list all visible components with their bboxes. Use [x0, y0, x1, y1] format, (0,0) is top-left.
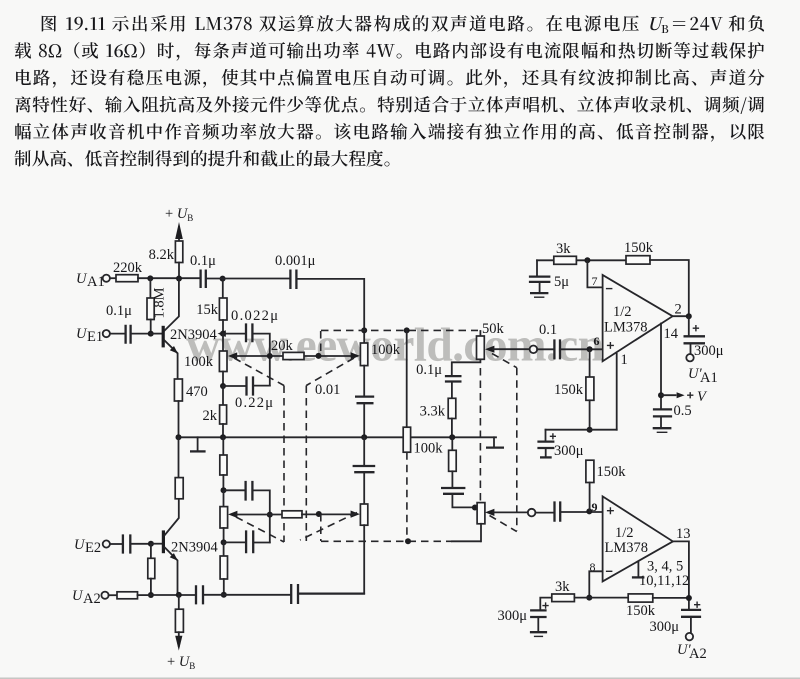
svg-text:1/2: 1/2: [613, 304, 632, 320]
svg-text:E2: E2: [85, 540, 101, 556]
svg-text:50k: 50k: [482, 321, 505, 337]
svg-text:LM378: LM378: [604, 320, 648, 336]
svg-text:2: 2: [675, 302, 682, 318]
svg-text:300μ: 300μ: [694, 343, 724, 359]
svg-text:470: 470: [186, 384, 208, 400]
svg-text:A2: A2: [689, 646, 707, 662]
svg-text:150k: 150k: [626, 603, 656, 619]
svg-text:6: 6: [594, 334, 600, 348]
svg-text:LM378: LM378: [605, 540, 649, 556]
svg-text:0.022μ: 0.022μ: [231, 308, 278, 324]
svg-text:14: 14: [664, 326, 679, 342]
svg-text:20k: 20k: [271, 338, 294, 354]
svg-text:9: 9: [592, 500, 598, 514]
svg-text:A1: A1: [87, 274, 105, 290]
svg-text:3k: 3k: [555, 579, 570, 595]
svg-text:150k: 150k: [624, 240, 654, 256]
svg-text:5μ: 5μ: [554, 274, 569, 290]
svg-text:0.22μ: 0.22μ: [235, 395, 273, 411]
svg-text:15k: 15k: [196, 302, 219, 318]
svg-text:A1: A1: [700, 370, 718, 386]
svg-text:2N3904: 2N3904: [171, 540, 218, 556]
svg-text:100k: 100k: [371, 342, 401, 358]
svg-text:7: 7: [592, 274, 598, 288]
svg-text:0.1μ: 0.1μ: [106, 303, 132, 319]
svg-text:300μ: 300μ: [649, 619, 679, 635]
svg-text:1/2: 1/2: [615, 525, 634, 541]
svg-text:0.1μ: 0.1μ: [190, 253, 216, 269]
svg-text:1.8M: 1.8M: [152, 287, 168, 318]
svg-text:300μ: 300μ: [554, 443, 584, 459]
svg-text:150k: 150k: [554, 382, 584, 398]
svg-text:220k: 220k: [113, 260, 143, 276]
svg-text:0.5: 0.5: [674, 403, 692, 419]
svg-text:13: 13: [676, 526, 691, 542]
svg-text:300μ: 300μ: [497, 608, 527, 624]
svg-text:2N3904: 2N3904: [170, 327, 217, 343]
svg-text:0.01: 0.01: [315, 382, 340, 398]
svg-text:1: 1: [621, 352, 628, 368]
svg-text:0.001μ: 0.001μ: [275, 253, 316, 269]
svg-text:10,11,12: 10,11,12: [639, 573, 689, 589]
svg-text:+ UB: + UB: [167, 654, 195, 671]
svg-text:0.1: 0.1: [539, 322, 557, 338]
svg-text:+ UB: + UB: [165, 206, 193, 223]
svg-text:150k: 150k: [597, 464, 627, 480]
svg-text:100k: 100k: [184, 354, 214, 370]
svg-text:100k: 100k: [414, 441, 444, 457]
svg-text:A2: A2: [83, 591, 101, 607]
svg-text:E1: E1: [87, 329, 103, 345]
svg-text:3k: 3k: [556, 241, 571, 257]
svg-text:2k: 2k: [203, 408, 218, 424]
svg-text:0.1μ: 0.1μ: [416, 362, 442, 378]
svg-text:3.3k: 3.3k: [420, 404, 446, 420]
svg-text:8.2k: 8.2k: [149, 247, 175, 263]
svg-text:V: V: [697, 389, 708, 405]
